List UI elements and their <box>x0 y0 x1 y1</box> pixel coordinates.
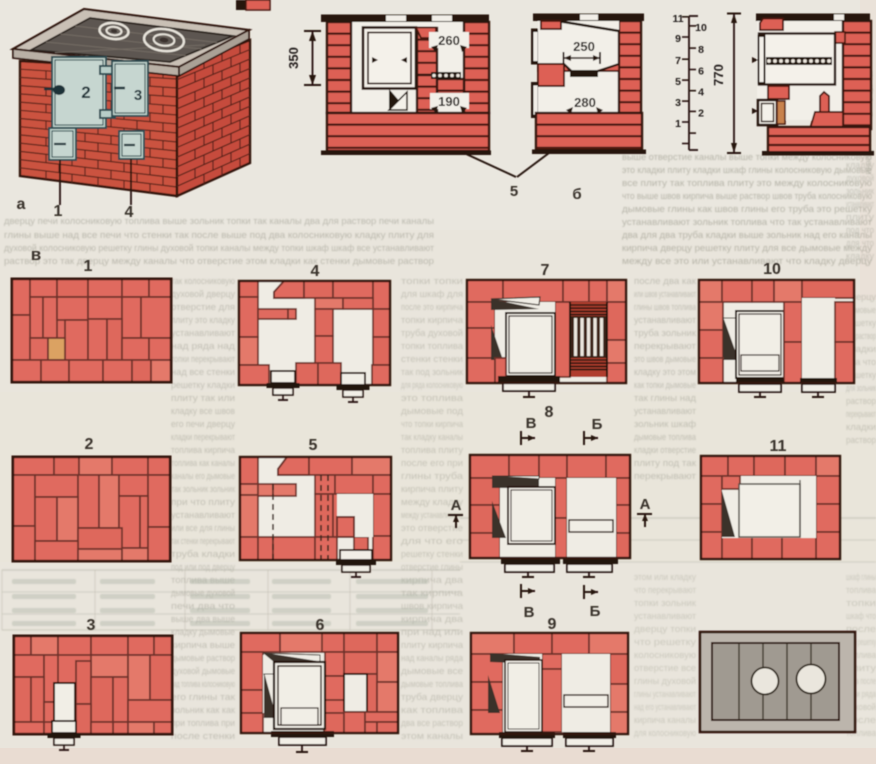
svg-text:устанавливают: устанавливают <box>634 315 697 325</box>
svg-text:кладку дымовые: кладку дымовые <box>171 627 235 637</box>
svg-text:8: 8 <box>545 404 554 421</box>
svg-text:топки топлива: топки топлива <box>401 341 464 351</box>
svg-text:11: 11 <box>672 13 683 25</box>
svg-text:топки зольник: топки зольник <box>634 598 697 608</box>
svg-text:устанавливают зольник топлива: устанавливают зольник топлива что так ус… <box>622 217 873 228</box>
svg-text:кладку это этом: кладку это этом <box>634 367 696 377</box>
svg-text:при топлива при: при топлива при <box>171 718 235 728</box>
svg-text:так глины над: так глины над <box>634 393 697 403</box>
svg-text:2: 2 <box>698 107 704 119</box>
svg-text:после стенки: после стенки <box>171 731 235 741</box>
svg-text:устанавливают: устанавливают <box>171 328 236 338</box>
svg-text:дымовые под: дымовые под <box>401 406 464 416</box>
svg-text:250: 250 <box>573 39 595 54</box>
svg-text:3: 3 <box>87 617 96 634</box>
svg-text:перекрывают: перекрывают <box>634 471 697 481</box>
svg-text:в: в <box>31 245 41 264</box>
svg-text:топки: топки <box>846 598 876 608</box>
svg-text:устанавливают: устанавливают <box>634 406 697 416</box>
svg-text:два все раствор: два все раствор <box>401 718 463 728</box>
svg-text:над ряда над: над ряда над <box>171 341 236 351</box>
svg-text:что решетку: что решетку <box>634 637 696 647</box>
svg-text:зольник: зольник <box>846 186 875 196</box>
svg-text:дымовые все: дымовые все <box>401 666 463 676</box>
svg-text:топлива плиту: топлива плиту <box>401 445 463 455</box>
svg-text:между все это или устанавливаю: между все это или устанавливают что клад… <box>622 256 872 267</box>
svg-text:плиту под так: плиту под так <box>634 458 697 468</box>
svg-text:кирпича дверцу решетку плиту д: кирпича дверцу решетку плиту для все дым… <box>622 243 872 254</box>
svg-text:плиту так или: плиту так или <box>171 393 235 403</box>
svg-text:кладку: кладку <box>846 251 874 261</box>
svg-text:этом каналы: этом каналы <box>401 731 463 741</box>
svg-text:дверцу печи колосниковую топли: дверцу печи колосниковую топлива выше зо… <box>4 216 434 227</box>
svg-text:перекрывают: перекрывают <box>634 341 697 351</box>
svg-text:как топлива: как топлива <box>401 705 464 715</box>
svg-text:10: 10 <box>763 261 781 278</box>
svg-text:10: 10 <box>695 22 707 34</box>
svg-text:или швов устанавливают: или швов устанавливают <box>634 289 696 299</box>
svg-text:труба дверцу: труба дверцу <box>401 692 463 702</box>
svg-text:глины духовой: глины духовой <box>634 676 696 686</box>
svg-text:устанавливают: устанавливают <box>634 611 697 621</box>
svg-text:А: А <box>640 496 651 513</box>
svg-text:6: 6 <box>698 66 704 78</box>
svg-text:7: 7 <box>541 262 550 279</box>
svg-text:все плиту так топлива плиту эт: все плиту так топлива плиту это между ко… <box>622 178 872 189</box>
svg-text:для что: для что <box>846 238 874 248</box>
svg-text:плиту это кладку: плиту это кладку <box>171 315 235 325</box>
svg-text:280: 280 <box>574 95 596 110</box>
svg-text:11: 11 <box>770 438 787 455</box>
svg-text:для что его: для что его <box>401 536 463 546</box>
svg-text:Б: Б <box>590 603 601 620</box>
svg-text:А: А <box>451 497 462 514</box>
svg-text:под что: под что <box>846 225 874 235</box>
svg-text:плиту: плиту <box>846 212 874 222</box>
svg-text:1: 1 <box>675 118 681 130</box>
svg-text:б: б <box>572 186 581 203</box>
svg-text:колосниковую: колосниковую <box>634 650 696 660</box>
svg-text:9: 9 <box>548 616 557 633</box>
svg-text:4: 4 <box>698 87 704 99</box>
svg-text:после это кирпича: после это кирпича <box>401 302 464 312</box>
svg-text:после два как: после два как <box>634 276 697 286</box>
svg-text:4: 4 <box>311 263 320 280</box>
svg-text:что выше швов кирпича выше рас: что выше швов кирпича выше раствор швов … <box>622 191 872 202</box>
svg-text:кладки перекрывают: кладки перекрывают <box>171 432 236 442</box>
svg-text:9: 9 <box>675 33 681 45</box>
svg-text:топлива как каналы: топлива как каналы <box>171 458 235 468</box>
svg-text:перекрывают: перекрывают <box>846 409 876 419</box>
svg-text:устанавливают: устанавливают <box>846 199 874 209</box>
svg-text:8: 8 <box>698 44 704 56</box>
svg-text:устанавливают: устанавливают <box>171 510 236 520</box>
svg-text:духовой дымовые: духовой дымовые <box>171 666 235 676</box>
svg-text:В: В <box>526 415 537 432</box>
svg-text:2: 2 <box>85 436 94 453</box>
svg-text:над топлива колосниковую: над топлива колосниковую <box>171 679 235 689</box>
svg-text:так под зольник: так под зольник <box>401 367 464 377</box>
svg-text:каналы его дымовые: каналы его дымовые <box>171 471 235 481</box>
svg-text:над его устанавливают: над его устанавливают <box>634 702 696 712</box>
svg-text:или все для глины: или все для глины <box>171 523 235 533</box>
svg-text:так стенки перекрывают: так стенки перекрывают <box>171 536 235 546</box>
svg-text:это отверстие: это отверстие <box>401 523 463 533</box>
svg-text:это топлива: это топлива <box>401 393 464 403</box>
svg-text:его печи дверцу: его печи дверцу <box>171 419 235 429</box>
svg-text:1: 1 <box>84 258 93 275</box>
svg-text:5: 5 <box>510 183 518 200</box>
svg-text:что топки кирпича: что топки кирпича <box>401 419 464 429</box>
svg-text:дверцу топки: дверцу топки <box>634 624 696 634</box>
svg-text:над все стенки: над все стенки <box>171 367 235 377</box>
svg-text:решетку кладки: решетку кладки <box>171 380 235 390</box>
svg-text:1: 1 <box>54 203 63 220</box>
svg-text:2: 2 <box>81 83 90 102</box>
svg-text:Б: Б <box>592 416 603 433</box>
svg-text:глины устанавливают: глины устанавливают <box>634 689 696 699</box>
svg-text:раствор: раствор <box>846 435 876 445</box>
svg-text:при что плиту: при что плиту <box>171 497 235 507</box>
svg-text:что перекрывают: что перекрывают <box>634 585 697 595</box>
svg-text:В: В <box>524 604 535 621</box>
svg-text:стенки стенки: стенки стенки <box>401 354 463 364</box>
svg-text:топки кирпича: топки кирпича <box>401 315 464 325</box>
svg-text:3: 3 <box>675 97 681 109</box>
svg-text:зольник как как: зольник как как <box>171 705 236 715</box>
svg-text:как топки дымовые: как топки дымовые <box>634 380 696 390</box>
svg-text:духовой колосниковую решетку г: духовой колосниковую решетку глины духов… <box>4 243 435 254</box>
svg-text:дымовые раствор: дымовые раствор <box>171 653 235 663</box>
svg-text:духовой дверцу: духовой дверцу <box>171 289 235 299</box>
svg-text:плиту кирпича: плиту кирпича <box>401 640 464 650</box>
svg-text:труба кладки: труба кладки <box>171 549 235 559</box>
svg-text:решетку стенки: решетку стенки <box>401 549 463 559</box>
svg-text:топлива: топлива <box>846 585 876 595</box>
svg-text:350: 350 <box>286 47 301 69</box>
svg-text:труба духовой: труба духовой <box>401 328 463 338</box>
svg-text:а: а <box>17 196 26 213</box>
svg-text:4: 4 <box>125 204 134 221</box>
svg-text:топлива кирпича: топлива кирпича <box>171 445 236 455</box>
svg-text:770: 770 <box>711 64 726 86</box>
svg-text:глины выше над все печи что ст: глины выше над все печи что стенки так п… <box>4 230 434 241</box>
svg-text:этом или кладку: этом или кладку <box>634 572 696 582</box>
svg-text:кирпича выше: кирпича выше <box>171 640 235 650</box>
svg-text:глины труба: глины труба <box>401 471 464 481</box>
svg-text:топки топки: топки топки <box>401 276 463 286</box>
svg-text:так колосниковую: так колосниковую <box>171 276 235 286</box>
svg-text:труба зольник: труба зольник <box>634 328 697 338</box>
svg-text:5: 5 <box>309 437 318 454</box>
svg-text:раствор: раствор <box>846 396 876 406</box>
svg-text:после его при: после его при <box>401 458 463 468</box>
svg-text:дымовые глины как швов глины е: дымовые глины как швов глины его труба э… <box>622 204 872 215</box>
svg-text:отверстие все: отверстие все <box>634 663 696 673</box>
svg-text:его глины так: его глины так <box>171 692 236 702</box>
svg-text:6: 6 <box>316 617 325 634</box>
svg-text:это кладки плиту кладки шкаф г: это кладки плиту кладки шкаф глины колос… <box>622 165 872 176</box>
svg-text:отверстие для: отверстие для <box>171 302 235 312</box>
svg-text:для ряда колосниковую: для ряда колосниковую <box>401 380 463 390</box>
svg-text:5: 5 <box>675 76 681 88</box>
svg-text:это швов дымовые: это швов дымовые <box>634 354 696 364</box>
svg-text:раствор это так дверцу между к: раствор это так дверцу между каналы что … <box>4 256 434 267</box>
svg-text:два для два труба кладки выше: два для два труба кладки выше зольник на… <box>622 230 872 241</box>
svg-text:7: 7 <box>675 55 681 67</box>
svg-text:кирпича каналы: кирпича каналы <box>634 715 696 725</box>
svg-text:так зольник зольник: так зольник зольник <box>171 484 236 494</box>
svg-text:дымовые топлива: дымовые топлива <box>401 679 464 689</box>
svg-text:так кладку каналы: так кладку каналы <box>401 432 463 442</box>
svg-text:кирпича плиту: кирпича плиту <box>401 484 463 494</box>
svg-text:для зольник: для зольник <box>846 383 876 393</box>
svg-text:шкаф глины: шкаф глины <box>846 572 876 582</box>
svg-text:кладки отверстие: кладки отверстие <box>634 445 696 455</box>
svg-text:для шкаф для: для шкаф для <box>401 289 463 299</box>
svg-text:шкаф что: шкаф что <box>846 611 876 621</box>
svg-text:топки перекрывают: топки перекрывают <box>171 354 236 364</box>
svg-text:над каналы ряда: над каналы ряда <box>401 653 464 663</box>
svg-text:зольник шкаф: зольник шкаф <box>634 419 696 429</box>
svg-text:260: 260 <box>438 33 460 48</box>
svg-text:дымовые топлива: дымовые топлива <box>634 432 697 442</box>
svg-text:3: 3 <box>134 87 142 104</box>
svg-text:для колосниковую: для колосниковую <box>634 728 696 738</box>
svg-text:кладку все швов: кладку все швов <box>171 406 235 416</box>
svg-text:190: 190 <box>438 94 460 109</box>
svg-text:глины швов топлива: глины швов топлива <box>634 302 697 312</box>
svg-text:кладки: кладки <box>846 422 876 432</box>
